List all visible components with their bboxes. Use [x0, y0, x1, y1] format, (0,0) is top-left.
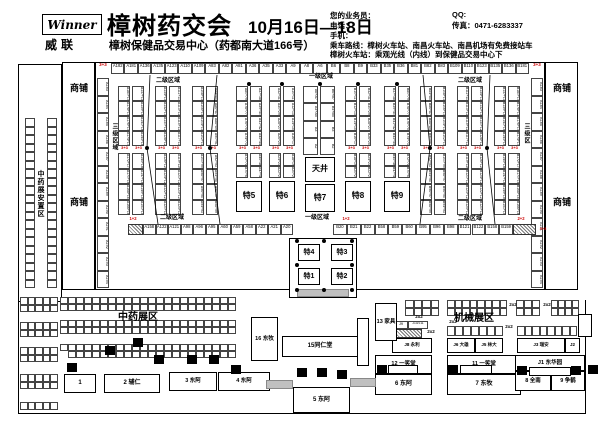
special-booth: 特4 [298, 244, 320, 261]
booth-cell: B98+97 [434, 169, 446, 185]
machine-grid-cell [463, 326, 471, 336]
placement-grid-cell [47, 212, 57, 221]
booth-cell: J10/J11 [408, 321, 428, 329]
narrow-stall [357, 318, 369, 366]
booth-cell-wall: A193 [97, 253, 109, 271]
placement-grid-cell [25, 280, 35, 289]
booth-cell: B20+21 [345, 166, 357, 179]
booth-cell: B180+179 [508, 86, 520, 101]
booth-cell: A180+179 [118, 86, 130, 101]
herb-grid-cell [148, 297, 156, 304]
herb-grid-cell [92, 304, 100, 311]
booth-cell: A94+93 [192, 200, 204, 216]
herb-grid-cell [132, 304, 140, 311]
herb-grid-cell [84, 297, 92, 304]
machine-grid-cell [565, 308, 572, 316]
booth-cell: B47+48 [384, 166, 396, 179]
booth-cell-top: A135 [151, 63, 164, 74]
herb-grid-cell [156, 327, 164, 334]
booth-cell-bottom: A60 [218, 224, 231, 235]
herb-grid-cell [20, 402, 28, 410]
booth-cell: A22+21 [269, 166, 281, 179]
pillar [231, 365, 241, 374]
pillar [187, 355, 197, 364]
corner-dot [318, 82, 322, 86]
booth-cell: B100+99 [434, 153, 446, 169]
herb-grid-cell [60, 304, 68, 311]
booth-cell-wall: B194 [531, 271, 543, 289]
booth-cell: A4+A5 [303, 103, 318, 120]
herb-grid-cell [180, 304, 188, 311]
booth-cell: A111+112 [169, 86, 181, 101]
booth-cell: B4+B5 [320, 103, 335, 120]
booth-cell: A106+105 [192, 101, 204, 116]
placement-grid-cell [47, 169, 57, 178]
booth-cell-top: A123 [165, 63, 178, 74]
herb-grid-cell [164, 327, 172, 334]
booth-cell-top: B33 [367, 63, 380, 74]
booth-cell: A119+120 [169, 153, 181, 169]
booth-cell: A115+116 [169, 116, 181, 131]
herb-grid-cell [180, 327, 188, 334]
booth-cell: A128+127 [155, 131, 167, 146]
pillar [105, 346, 115, 355]
placement-grid-cell [25, 246, 35, 255]
booth-cell-bottom: A121 [168, 224, 181, 235]
booth-cell: B28+27 [359, 116, 371, 131]
booth-cell: A104+103 [192, 116, 204, 131]
herb-grid-cell [228, 297, 236, 304]
booth-cell: A74+73 [236, 131, 248, 146]
herb-grid-cell [132, 327, 140, 334]
herb-grid-cell [220, 297, 228, 304]
pillar [571, 366, 581, 375]
section-mark: 3+3 [269, 146, 282, 152]
corner-dot [485, 146, 489, 150]
special-booth: 特2 [331, 268, 353, 285]
corner-dot [295, 288, 299, 292]
shops-label: 商铺 [68, 198, 90, 208]
booth-cell-wall: B183 [531, 78, 543, 96]
herb-grid-cell [196, 320, 204, 327]
booth-cell-wall: B185 [531, 113, 543, 131]
herb-grid-cell [35, 374, 43, 382]
booth-cell-wall: A194 [97, 271, 109, 289]
booth-cell: A147+148 [132, 169, 144, 185]
booth-cell-bottom: B159 [499, 224, 513, 235]
herb-grid-cell [43, 330, 51, 338]
booth-cell-wall: B187 [531, 148, 543, 166]
herb-grid-cell [220, 344, 228, 351]
machine-grid-cell [471, 326, 479, 336]
booth-cell-bottom: A58 [243, 224, 256, 235]
placement-grid-cell [47, 229, 57, 238]
booth-cell: A108+107 [192, 86, 204, 101]
herb-grid-cell [180, 320, 188, 327]
herb-grid-cell [204, 320, 212, 327]
herb-grid-cell [35, 330, 43, 338]
herb-grid-cell [20, 305, 28, 313]
herb-grid-cell [20, 355, 28, 363]
placement-grid-cell [47, 271, 57, 280]
herb-grid-cell [116, 351, 124, 358]
herb-grid-cell [20, 374, 28, 382]
herb-grid-cell [76, 297, 84, 304]
herb-grid-cell [188, 344, 196, 351]
placement-grid-cell [47, 254, 57, 263]
booth-cell-bottom: B21 [347, 224, 361, 235]
booth-cell: A39+40 [250, 101, 262, 116]
corner-dot [208, 146, 212, 150]
herb-grid-cell [212, 297, 220, 304]
herb-grid-cell [92, 327, 100, 334]
booth-cell-dense [128, 224, 143, 235]
booth-cell-bottom: B98 [444, 224, 458, 235]
herb-grid-cell [212, 344, 220, 351]
herb-grid-cell [68, 304, 76, 311]
corner-dot [350, 239, 354, 243]
booth-cell: A132+131 [155, 101, 167, 116]
pillar [297, 368, 307, 377]
booth-cell: B126+125 [471, 153, 483, 169]
herb-grid-cell [35, 402, 43, 410]
herb-grid-cell [228, 320, 236, 327]
herb-grid-cell [68, 320, 76, 327]
booth-cell: B141+142 [494, 116, 506, 131]
booth-cell: B22+21 [359, 166, 371, 179]
booth-cell-bottom: B122 [472, 224, 486, 235]
machine-grid-cell [532, 308, 540, 316]
booth-cell: B102+101 [434, 131, 446, 146]
booth-cell-top: A136 [138, 63, 151, 74]
booth-cell-top: B123 [475, 63, 488, 74]
booth-cell-bottom: A98 [181, 224, 194, 235]
booth-cell: B10+11 [345, 86, 357, 101]
herb-grid-cell [172, 351, 180, 358]
booth-cell: B122+121 [471, 184, 483, 200]
booth-cell: A6+A7 [303, 86, 318, 103]
section-mark: 2+2 [514, 217, 528, 224]
herb-grid-cell [43, 297, 51, 305]
herb-grid-cell [124, 344, 132, 351]
herb-grid-cell [28, 322, 36, 330]
booth-cell-wall: A185 [97, 113, 109, 131]
section-mark: 3+3 [250, 146, 263, 152]
herb-grid-cell [60, 297, 68, 304]
booth-cell-top: A6 [313, 63, 326, 74]
section-mark: 3+3 [457, 146, 470, 152]
herb-grid-cell [50, 355, 58, 363]
booth-cell: B16+17 [345, 131, 357, 146]
booth-cell-wall: A186 [97, 131, 109, 149]
size-mark: 2x2 [506, 303, 520, 309]
boundary-line [18, 413, 586, 414]
booth-cell-top: A182 [111, 63, 124, 74]
booth-cell: B134+133 [471, 86, 483, 101]
machine-grid-cell [547, 326, 555, 336]
herb-grid-cell [35, 297, 43, 305]
herb-grid-cell [148, 304, 156, 311]
herb-grid-cell [50, 322, 58, 330]
booth-cell: B39+40 [384, 101, 396, 116]
booth-cell: A100+99 [192, 153, 204, 169]
corner-mark: 3+3 [530, 63, 544, 70]
herb-grid-cell [180, 344, 188, 351]
booth-cell: B137+138 [494, 86, 506, 101]
booth-cell: A18+19 [283, 153, 295, 166]
booth-cell-bottom: B60 [402, 224, 416, 235]
booth-cell: A98+99 [206, 200, 218, 216]
herb-grid-cell [204, 344, 212, 351]
herb-grid-cell [204, 304, 212, 311]
walkway [350, 378, 376, 387]
machine-grid-cell [551, 308, 558, 316]
herb-grid-cell [60, 320, 68, 327]
booth-cell: B139+140 [494, 101, 506, 116]
booth-cell: B6+B7 [320, 86, 335, 103]
booth-cell: B124+123 [471, 169, 483, 185]
booth-cell-top: B109 [448, 63, 461, 74]
placement-grid-cell [47, 246, 57, 255]
herb-grid-cell [76, 320, 84, 327]
herb-grid-cell [43, 305, 51, 313]
placement-grid-cell [25, 135, 35, 144]
herb-grid-cell [148, 344, 156, 351]
booth-cell: A2 [303, 138, 318, 155]
booth-cell-bottom: B121 [458, 224, 472, 235]
herb-grid-cell [212, 320, 220, 327]
herb-grid-cell [60, 327, 68, 334]
corner-dot [295, 263, 299, 267]
booth-cell: A149+150 [132, 184, 144, 200]
booth-cell-top: B8 [340, 63, 353, 74]
booth-cell-wall: A190 [97, 201, 109, 219]
herb-grid-cell [196, 344, 204, 351]
booth-cell: A70+69 [236, 166, 248, 179]
booth-cell: B143+144 [494, 131, 506, 146]
booth-cell: B147+148 [494, 169, 506, 185]
booth-cell: B3 [320, 121, 335, 138]
walkway [266, 380, 293, 389]
herb-grid-cell [220, 327, 228, 334]
booth-cell: A145+146 [132, 153, 144, 169]
level2-label: 二级区域 [452, 78, 488, 86]
booth-cell: A84+85 [206, 86, 218, 101]
herb-grid-cell [124, 351, 132, 358]
placement-grid-cell [47, 178, 57, 187]
booth-cell-bottom: B95 [416, 224, 430, 235]
company-block: 5 东阿 [293, 387, 350, 413]
herb-grid-cell [28, 355, 36, 363]
machine-grid-cell [572, 300, 579, 308]
booth-cell: B178+177 [508, 101, 520, 116]
herb-grid-cell [43, 322, 51, 330]
pillar [154, 355, 164, 364]
size-mark: 2x2 [446, 320, 460, 326]
booth-cell: B96+95 [434, 184, 446, 200]
booth-cell: B84+85 [420, 86, 432, 101]
placement-grid-cell [25, 254, 35, 263]
herb-grid-cell [50, 330, 58, 338]
herb-grid-cell [220, 351, 228, 358]
placement-grid-cell [47, 127, 57, 136]
booth-cell: B168+167 [508, 184, 520, 200]
booth-cell: B119+120 [457, 153, 469, 169]
herb-grid-cell [164, 304, 172, 311]
herb-grid-cell [116, 297, 124, 304]
herb-grid-cell [35, 355, 43, 363]
booth-cell-top: B110 [462, 63, 475, 74]
herb-grid-cell [124, 304, 132, 311]
booth-cell-bottom: A22 [256, 224, 269, 235]
booth-cell: B14+15 [345, 116, 357, 131]
booth-cell: B18+19 [345, 153, 357, 166]
booth-cell: B170+169 [508, 169, 520, 185]
booth-cell: B92+93 [420, 153, 432, 169]
booth-cell: B70+69 [398, 166, 410, 179]
section-mark: 1+2 [126, 217, 140, 224]
booth-cell-bottom: B158 [485, 224, 499, 235]
booth-cell: B113+114 [457, 101, 469, 116]
booth-cell: A126+125 [155, 153, 167, 169]
herb-grid-cell [68, 327, 76, 334]
herb-grid-cell [140, 327, 148, 334]
machine-grid-cell [405, 300, 414, 308]
booth-cell: B24+23 [359, 153, 371, 166]
herb-grid-cell [35, 382, 43, 390]
booth-cell: A122+121 [155, 184, 167, 200]
booth-cell-wall: A183 [97, 78, 109, 96]
herb-grid-cell [140, 297, 148, 304]
company-block: 4 东阿 [218, 372, 270, 391]
corner-dot [350, 288, 354, 292]
machine-grid-cell [525, 326, 533, 336]
booth-cell-top: B81 [408, 63, 421, 74]
herb-grid-cell [20, 330, 28, 338]
herb-grid-cell [116, 327, 124, 334]
herb-grid-cell [220, 320, 228, 327]
company-block: 3 东阿 [169, 372, 217, 391]
herb-grid-cell [156, 297, 164, 304]
booth-cell: A178+177 [118, 101, 130, 116]
booth-cell-wall: B190 [531, 201, 543, 219]
booth-cell: B41+42 [384, 116, 396, 131]
herb-grid-cell [43, 355, 51, 363]
booth-cell-bottom: A21 [268, 224, 281, 235]
booth-cell: A170+169 [118, 169, 130, 185]
booth-cell: A43+44 [250, 131, 262, 146]
booth-cell: A92+93 [206, 153, 218, 169]
booth-cell: B45+46 [384, 153, 396, 166]
herb-grid-cell [228, 327, 236, 334]
booth-cell: A78+77 [236, 101, 248, 116]
booth-cell-bottom: A20 [281, 224, 294, 235]
inner-counter [388, 365, 418, 374]
boundary-line [18, 302, 19, 414]
booth-cell-dense [513, 224, 536, 235]
placement-grid-cell [25, 127, 35, 136]
special-booth: 特1 [298, 268, 320, 285]
shops-label: 商铺 [551, 198, 573, 208]
booth-cell-bottom: A122 [156, 224, 169, 235]
pillar [133, 338, 143, 347]
booth-cell: A120+119 [155, 200, 167, 216]
section-mark: 3+3 [434, 146, 447, 152]
machine-grid-cell [462, 300, 470, 308]
placement-grid-cell [47, 195, 57, 204]
booth-cell-wall: A189 [97, 183, 109, 201]
booth-cell: A96+97 [206, 184, 218, 200]
machine-grid-cell [447, 326, 455, 336]
herb-area-label: 中药展区 [110, 313, 166, 324]
booth-cell-top: B36 [394, 63, 407, 74]
pillar [377, 365, 387, 374]
machine-grid-cell [487, 326, 495, 336]
herb-grid-cell [35, 322, 43, 330]
booth-cell-top: A83 [205, 63, 218, 74]
herb-grid-cell [116, 344, 124, 351]
herb-grid-cell [92, 320, 100, 327]
herb-grid-cell [60, 344, 68, 351]
booth-cell-top: B82 [421, 63, 434, 74]
booth-cell-bottom: B20 [333, 224, 347, 235]
placement-grid-cell [47, 118, 57, 127]
section-mark: 3+3 [132, 146, 145, 152]
company-block: 16 东牧 [251, 317, 278, 361]
herb-grid-cell [76, 304, 84, 311]
machine-grid-cell [447, 300, 455, 308]
corner-dot [322, 288, 326, 292]
herb-grid-cell [180, 297, 188, 304]
machine-grid-cell [532, 326, 540, 336]
booth-cell-wall: B188 [531, 166, 543, 184]
booth-cell: B166+165 [508, 200, 520, 216]
level2-label: 二级区域 [452, 216, 488, 224]
placement-grid-cell [47, 161, 57, 170]
herb-grid-cell [124, 327, 132, 334]
machine-grid-cell [470, 300, 478, 308]
herb-grid-cell [28, 382, 36, 390]
herb-grid-cell [68, 351, 76, 358]
booth-cell: A102+101 [192, 131, 204, 146]
booth-cell-top: A110 [178, 63, 191, 74]
herb-grid-cell [220, 304, 228, 311]
booth-cell: B43+44 [384, 131, 396, 146]
booth-cell: A37+38 [250, 86, 262, 101]
booth-cell-bottom: A95 [206, 224, 219, 235]
herb-grid-cell [204, 297, 212, 304]
herb-grid-cell [196, 351, 204, 358]
booth-cell: B37+38 [384, 86, 396, 101]
booth-cell-wall: A192 [97, 236, 109, 254]
section-mark: 3+3 [236, 146, 249, 152]
company-block: 7 东牧 [447, 374, 521, 395]
booth-cell: B90+91 [420, 131, 432, 146]
machine-grid-cell [414, 300, 423, 308]
booth-cell: B151+152 [494, 200, 506, 216]
herb-grid-cell [50, 305, 58, 313]
herb-grid-cell [140, 351, 148, 358]
placement-area-label: 中药展安置区 [34, 148, 45, 240]
section-mark: 3+3 [471, 146, 484, 152]
machine-grid-cell [555, 326, 563, 336]
machine-grid-cell [565, 300, 572, 308]
booth-cell: A121+122 [169, 169, 181, 185]
corner-dot [322, 239, 326, 243]
herb-grid-cell [50, 347, 58, 355]
herb-grid-cell [228, 344, 236, 351]
special-booth: 特9 [384, 181, 410, 212]
